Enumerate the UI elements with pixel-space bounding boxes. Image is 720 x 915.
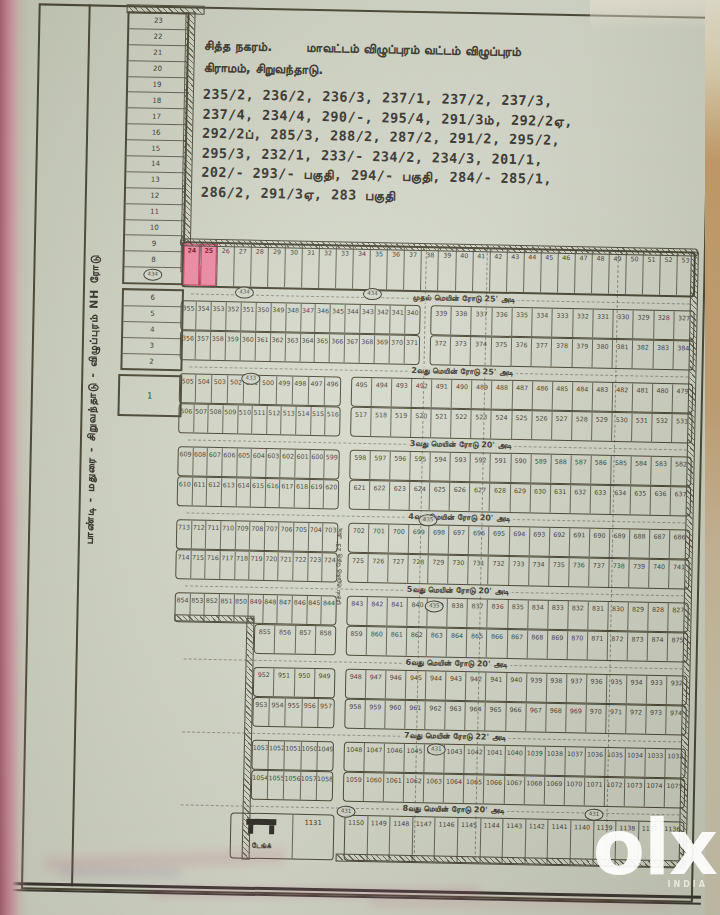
plot-cell: 507 <box>194 405 209 433</box>
plot-cell: 697 <box>449 526 470 554</box>
plot-cell: 22 <box>129 29 187 46</box>
survey-stone-marker: 434 <box>143 269 162 281</box>
plot-cell: 1040 <box>505 746 526 774</box>
plot-cell: 483 <box>592 383 613 411</box>
plot-cell: 626 <box>450 483 471 511</box>
olx-watermark-country: INDIA <box>668 880 708 889</box>
plot-cell: 356 <box>181 331 196 359</box>
plot-cell: 956 <box>302 699 319 727</box>
plot-cell: 480 <box>653 384 674 412</box>
plot-cell: 859 <box>347 627 368 655</box>
plot-cell: 722 <box>293 553 308 581</box>
plot-cell: 23 <box>129 13 187 30</box>
plot-cell: 837 <box>468 599 489 627</box>
plot-cell: 949 <box>315 669 335 697</box>
plot-cell: 14 <box>126 156 184 173</box>
plot-cell: 515 <box>311 407 326 435</box>
plot-cell: 383 <box>653 341 674 369</box>
plot-cell: 506 <box>179 404 194 432</box>
plot-cell: 5 <box>123 306 181 323</box>
plot-cell: 499 <box>276 376 293 404</box>
plot-cell: 345 <box>331 304 346 332</box>
plot-cell: 700 <box>389 525 410 553</box>
plot-cell: 341 <box>390 305 405 333</box>
water-tank-icon <box>246 819 276 841</box>
plot-cell: 8 <box>124 251 182 268</box>
plot-cell: 712 <box>191 521 206 549</box>
plot-cell: 20 <box>128 61 186 78</box>
left-plot-strip-mid: 65432 <box>120 288 184 372</box>
photo-corner-highlight <box>590 0 720 30</box>
plot-cell: 871 <box>587 632 608 660</box>
plot-cell: 522 <box>451 410 472 438</box>
plot-cell: 339 <box>431 306 452 334</box>
plot-cell: 865 <box>467 629 488 657</box>
plot-cell: 711 <box>206 521 221 549</box>
plot-cell: 353 <box>211 302 226 330</box>
plot-block-left: 713712711710709708707706705704703 <box>176 519 339 552</box>
plot-cell: 606 <box>222 448 237 476</box>
plot-cell: 44 <box>524 250 542 292</box>
plot-block-left: 714715716717718719720721722723724 <box>175 549 338 582</box>
plot-cell: 737 <box>589 559 610 587</box>
plot-cell: 614 <box>236 478 251 506</box>
plot-cell: 378 <box>552 339 573 367</box>
plot-cell: 943 <box>446 672 467 700</box>
layout-plan: பாண்டி - மதுரை - சிறுவந்தாடு - விழுப்புர… <box>0 0 720 915</box>
ink-smudge <box>60 868 180 878</box>
plot-cell: 40 <box>456 249 474 291</box>
plot-cell: 350 <box>256 303 271 331</box>
plot-cell: 721 <box>279 552 294 580</box>
plot-cell: 713 <box>177 520 192 548</box>
plot-cell: 488 <box>492 381 513 409</box>
survey-stone-marker: 435 <box>418 514 437 526</box>
plot-cell: 36 <box>387 247 405 289</box>
plot-cell: 1033 <box>645 749 666 777</box>
road-label: முதல் மெயின் ரோடு 25' அடி <box>408 293 518 305</box>
plot-cell: 707 <box>265 522 280 550</box>
plot-cell: 609 <box>178 447 193 475</box>
plot-cell: 493 <box>392 379 413 407</box>
plot-cell: 698 <box>429 525 450 553</box>
plot-cell: 1043 <box>445 745 466 773</box>
plot-cell: 693 <box>529 527 550 555</box>
plot-cell: 726 <box>368 554 389 582</box>
olx-watermark-logo: olx <box>593 816 717 881</box>
plot-cell: 598 <box>350 451 371 479</box>
plot-block-left: 610611612613614615616617618619620 <box>177 476 340 509</box>
plot-cell: 45 <box>541 251 559 293</box>
plot-cell: 19 <box>128 77 186 94</box>
plot-cell: 379 <box>572 339 593 367</box>
plot-cell: 967 <box>526 703 547 731</box>
plot-cell: 42 <box>490 249 508 291</box>
plot-cell: 28 <box>251 245 269 287</box>
plot-cell: 731 <box>469 556 490 584</box>
plot-block-left: 10541055105610571058 <box>251 770 334 802</box>
plot-cell: 513 <box>282 406 297 434</box>
plot-cell: 603 <box>266 449 281 477</box>
plot-cell: 946 <box>386 670 407 698</box>
plot-cell: 848 <box>263 595 278 623</box>
plot-cell: 527 <box>552 412 573 440</box>
plot-cell: 500 <box>260 376 277 404</box>
plot-cell: 594 <box>430 452 451 480</box>
plot-cell: 1060 <box>364 773 385 801</box>
plot-cell: 940 <box>506 673 527 701</box>
plot-cell: 734 <box>529 557 550 585</box>
plot-cell: 716 <box>205 551 220 579</box>
plot-cell: 843 <box>347 597 368 625</box>
plot-cell: 368 <box>360 335 375 363</box>
plot-cell: 34 <box>353 247 371 289</box>
plot-cell: 727 <box>388 554 409 582</box>
plot-cell: 521 <box>431 409 452 437</box>
plot-cell: 856 <box>275 625 296 653</box>
plot-cell: 723 <box>308 553 323 581</box>
plot-cell: 612 <box>207 478 222 506</box>
plot-cell: 31 <box>302 246 320 288</box>
plot-cell: 604 <box>251 449 266 477</box>
plot-cell: 718 <box>235 551 250 579</box>
plot-cell: 586 <box>591 456 612 484</box>
plot-cell: 968 <box>546 704 567 732</box>
ink-smudge <box>370 899 670 907</box>
plot-cell: 335 <box>512 308 533 336</box>
plot-cell: 338 <box>451 307 472 335</box>
plot-cell: 371 <box>405 336 419 364</box>
plot-cell: 511 <box>252 406 267 434</box>
plot-cell: 868 <box>527 630 548 658</box>
plot-cell: 343 <box>360 305 375 333</box>
plot-cell: 331 <box>593 310 614 338</box>
plot-cell: 867 <box>507 630 528 658</box>
plot-cell: 328 <box>654 311 675 339</box>
plot-cell: 596 <box>390 452 411 480</box>
plot-cell: 349 <box>271 303 286 331</box>
plot-cell: 613 <box>222 478 237 506</box>
plot-cell: 33 <box>336 246 354 288</box>
plot-cell: 836 <box>488 600 509 628</box>
plot-cell: 524 <box>492 411 513 439</box>
plot-cell: 347 <box>301 304 316 332</box>
plot-cell: 375 <box>491 338 512 366</box>
plot-cell: 484 <box>572 382 593 410</box>
plot-cell: 688 <box>630 529 651 557</box>
plot-cell: 834 <box>528 600 549 628</box>
plot-cell: 860 <box>367 627 388 655</box>
plot-cell: 617 <box>280 479 295 507</box>
plot-block-left: 609608607606605604603602601600599 <box>177 446 340 479</box>
plot-cell: 360 <box>240 332 255 360</box>
plot-cell: 964 <box>466 702 487 730</box>
plot-cell: 504 <box>196 375 213 403</box>
plot-cell: 494 <box>372 378 393 406</box>
plot-cell: 487 <box>512 381 533 409</box>
plot-cell: 495 <box>352 378 373 406</box>
plot-cell: 498 <box>292 377 309 405</box>
plot-cell: 732 <box>489 557 510 585</box>
plot-cell: 503 <box>212 375 229 403</box>
plot-grid: முதல் குறுக்கு தெரு 23' அடி 242526272829… <box>170 241 696 867</box>
plot-cell: 352 <box>226 302 241 330</box>
plot-cell: 725 <box>348 554 369 582</box>
plot-cell: 593 <box>451 453 472 481</box>
plot-cell: 863 <box>427 628 448 656</box>
survey-stone-marker: 435 <box>425 600 444 612</box>
plot-cell: 1046 <box>384 743 405 771</box>
plot-cell: 1041 <box>485 745 506 773</box>
plot-cell: 380 <box>592 340 613 368</box>
plot-cell: 847 <box>278 595 293 623</box>
plot-cell: 832 <box>568 601 589 629</box>
photo-edge-right <box>705 0 720 915</box>
plot-cell: 618 <box>295 480 310 508</box>
plot-cell: 372 <box>431 336 452 364</box>
plot-cell: 348 <box>286 303 301 331</box>
plot-cell: 329 <box>633 310 654 338</box>
plot-cell: 592 <box>471 453 492 481</box>
plot-cell: 531 <box>632 413 653 441</box>
plot-cell: 32 <box>319 246 337 288</box>
plot-cell: 361 <box>255 333 270 361</box>
plot-cell: 611 <box>192 478 207 506</box>
plot-cell: 1042 <box>465 745 486 773</box>
plot-cell: 623 <box>390 482 411 510</box>
plot-cell: 627 <box>470 483 491 511</box>
plot-cell: 11 <box>125 204 183 221</box>
plot-cell: 607 <box>208 448 223 476</box>
plot-cell: 717 <box>220 551 235 579</box>
plot-cell: 1069 <box>544 777 565 805</box>
plot-cell: 370 <box>390 335 405 363</box>
plot-cell: 369 <box>375 335 390 363</box>
plot-cell: 12 <box>126 188 184 205</box>
plot-cell: 729 <box>428 555 449 583</box>
plot-cell: 969 <box>566 704 587 732</box>
plot-cell: 29 <box>268 245 286 287</box>
plot-block-left: 10531052105110501049 <box>251 740 334 772</box>
district-taluk: மாவட்டம் விழுப்புரம் வட்டம் விழுப்புரம் <box>306 40 521 60</box>
plot-cell: 864 <box>447 629 468 657</box>
plot-cell: 340 <box>405 306 419 334</box>
plot-cell: 959 <box>365 700 386 728</box>
road-label: 7வது மெயின் ரோடு 22' அடி <box>400 731 510 743</box>
plot-cell: 364 <box>300 334 315 362</box>
plot-cell: 6 <box>124 290 182 307</box>
plot-cell: 704 <box>309 523 324 551</box>
plot-cell: 497 <box>308 377 325 405</box>
plot-cell: 528 <box>572 412 593 440</box>
plot-cell: 39 <box>439 248 457 290</box>
plot-cell: 1037 <box>565 747 586 775</box>
plot-cell: 829 <box>628 602 649 630</box>
plot-cell: 846 <box>292 596 307 624</box>
plot-cell: 1055 <box>268 771 285 799</box>
plot-cell: 687 <box>650 530 671 558</box>
plot-cell: 636 <box>651 487 672 515</box>
plot-cell: 491 <box>432 379 453 407</box>
plot-cell: 950 <box>294 669 315 697</box>
survey-stone-marker: 433 <box>241 373 260 385</box>
plot-cell: 942 <box>466 672 487 700</box>
plot-cell: 1058 <box>317 772 333 800</box>
plot-cell: 1051 <box>285 741 302 769</box>
plot-cell: 608 <box>193 448 208 476</box>
plot-cell: 1056 <box>284 771 301 799</box>
plot-cell: 583 <box>651 457 672 485</box>
plot-cell: 24 <box>183 243 201 285</box>
plot-cell: 605 <box>237 448 252 476</box>
plot-cell: 857 <box>295 626 316 654</box>
plot-cell: 1036 <box>585 747 606 775</box>
plot-cell: 13 <box>126 172 184 189</box>
plot-cell: 954 <box>269 698 286 726</box>
plot-cell: 3 <box>123 338 181 355</box>
plot-cell: 622 <box>370 481 391 509</box>
plot-cell: 516 <box>326 407 340 435</box>
plot-cell: 1063 <box>424 774 445 802</box>
plot-cell: 695 <box>489 527 510 555</box>
plot-cell: 351 <box>241 302 256 330</box>
plot-cell: 1068 <box>524 776 545 804</box>
plot-cell: 833 <box>548 601 569 629</box>
plot-cell: 1059 <box>344 773 365 801</box>
plot-cell: 529 <box>592 413 613 441</box>
plot-cell: 382 <box>633 340 654 368</box>
plot-cell: 1065 <box>464 775 485 803</box>
plot-cell: 47 <box>575 251 593 293</box>
town-name: சித்த நகரம். <box>204 38 273 55</box>
plot-cell: 587 <box>571 455 592 483</box>
plot-cell: 485 <box>552 382 573 410</box>
plot-cell: 630 <box>530 484 551 512</box>
plot-cell: 10 <box>125 220 183 237</box>
plot-cell: 365 <box>315 334 330 362</box>
plot-cell: 702 <box>349 524 370 552</box>
plot-cell: 1070 <box>564 777 585 805</box>
plot-cell: 46 <box>558 251 576 293</box>
plot-cell: 625 <box>430 482 451 510</box>
plot-cell: 344 <box>345 305 360 333</box>
plot-cell: 342 <box>375 305 390 333</box>
plot-cell: 869 <box>547 631 568 659</box>
plot-cell: 740 <box>649 560 670 588</box>
survey-stone-marker: 434 <box>235 286 254 298</box>
plot-block-left: 855856857858 <box>254 624 337 656</box>
plot-cell: 855 <box>255 625 276 653</box>
plot-cell: 584 <box>631 456 652 484</box>
plot-cell: 490 <box>452 380 473 408</box>
plot-cell: 714 <box>176 550 191 578</box>
plot-cell: 629 <box>510 484 531 512</box>
plot-cell: 15 <box>127 140 185 157</box>
plot-cell: 523 <box>471 410 492 438</box>
plot-cell: 842 <box>367 597 388 625</box>
plot-cell: 701 <box>369 524 390 552</box>
plot-cell: 706 <box>279 522 294 550</box>
plot-cell: 944 <box>426 671 447 699</box>
plot-cell: 861 <box>387 627 408 655</box>
plot-cell: 736 <box>569 558 590 586</box>
plot-cell: 960 <box>385 700 406 728</box>
plot-cell: 934 <box>627 675 648 703</box>
plot-cell: 962 <box>425 701 446 729</box>
plot-cell: 333 <box>553 309 574 337</box>
plot-cell: 632 <box>570 485 591 513</box>
plot-block-left: 3553543533523513503493483473463453443433… <box>180 300 421 335</box>
plot-cell: 628 <box>490 484 511 512</box>
plot-cell: 27 <box>234 244 252 286</box>
ink-smudge <box>150 888 480 897</box>
plot-cell: 496 <box>325 377 341 405</box>
plot-cell: 709 <box>235 521 250 549</box>
plot-cell: 973 <box>646 706 667 734</box>
plot-cell: 966 <box>506 703 527 731</box>
plot-cell: 615 <box>251 479 266 507</box>
plot-cell: 1061 <box>384 773 405 801</box>
plot-cell: 25 <box>200 244 218 286</box>
plot-cell: 1038 <box>545 747 566 775</box>
plot-cell: 733 <box>509 557 530 585</box>
plot-cell: 841 <box>387 597 408 625</box>
plot-cell: 505 <box>180 374 197 402</box>
plot-cell: 37 <box>404 248 422 290</box>
village-name: கிராமம், சிறுவந்தாடு. <box>203 60 683 86</box>
road-label: 5வது மெயின் ரோடு 20' அடி <box>403 585 513 597</box>
plot-cell: 532 <box>652 414 673 442</box>
plot-cell: 874 <box>648 633 669 661</box>
plot-cell: 937 <box>566 674 587 702</box>
plot-cell: 1048 <box>344 743 365 771</box>
plot-cell: 972 <box>626 705 647 733</box>
plot-cell: 377 <box>532 338 553 366</box>
plot-cell: 955 <box>286 698 303 726</box>
plot-cell: 1052 <box>269 741 286 769</box>
plot-cell: 21 <box>129 45 187 62</box>
plot-cell: 720 <box>264 552 279 580</box>
plot-cell: 1050 <box>301 742 318 770</box>
plot-cell: 1067 <box>504 776 525 804</box>
plot-cell: 362 <box>270 333 285 361</box>
plot-cell: 953 <box>253 698 270 726</box>
plot-cell: 1034 <box>625 748 646 776</box>
plot-cell: 519 <box>391 409 412 437</box>
plot-cell: 518 <box>371 408 392 436</box>
plot-cell: 481 <box>633 383 654 411</box>
plot-cell: 938 <box>546 674 567 702</box>
plot-cell: 337 <box>472 307 493 335</box>
plot-cell: 17 <box>127 109 185 126</box>
plot-cell: 845 <box>307 596 322 624</box>
plot-cell: 831 <box>588 602 609 630</box>
plot-cell: 1039 <box>525 746 546 774</box>
plot-cell: 367 <box>345 335 360 363</box>
plot-cell: 828 <box>648 603 669 631</box>
plot-cell: 48 <box>592 252 610 294</box>
road-label: 8வது மெயின் ரோடு 20' அடி <box>398 804 508 816</box>
plot-cell: 601 <box>295 450 310 478</box>
plot-cell: 835 <box>508 600 529 628</box>
plot-cell: 600 <box>310 450 325 478</box>
plot-cell: 526 <box>532 411 553 439</box>
plot-cell: 1131 <box>292 815 333 860</box>
survey-stone-marker: 431 <box>336 806 355 818</box>
plot-cell: 26 <box>217 244 235 286</box>
plot-cell: 2 <box>122 354 180 370</box>
plot-cell: 376 <box>511 338 532 366</box>
